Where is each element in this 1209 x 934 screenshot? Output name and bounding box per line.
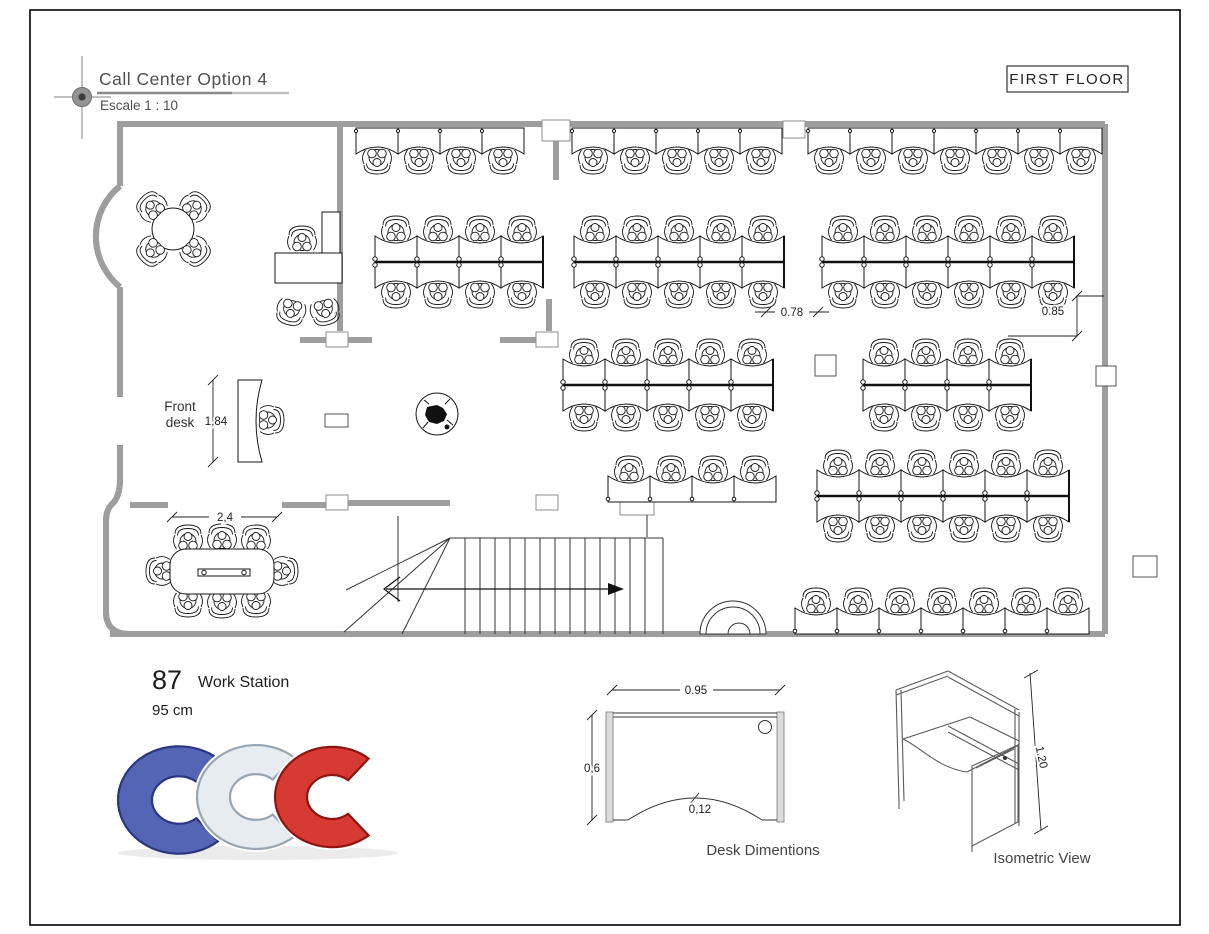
office-chair-icon [992,517,1021,542]
office-chair-icon [829,216,858,241]
workstation-wall-row [806,128,1102,174]
office-chair-icon [508,216,537,241]
office-chair-icon [466,216,495,241]
office-chair-icon [950,450,979,475]
dim-cubicle-height: 1.20 [1033,745,1049,769]
office-chair-icon [208,593,237,618]
furniture-layer [132,128,1102,634]
office-chair-icon [749,283,778,308]
office-chair-icon [174,592,203,617]
workstation-cluster [861,339,1031,431]
office-chair-icon [997,216,1026,241]
workstation-cluster [820,216,1074,308]
office-chair-icon [941,149,970,174]
office-chair-icon [741,456,770,481]
office-chair-icon [970,588,999,613]
dim-conference: 2,4 [217,512,234,524]
office-chair-icon [424,283,453,308]
office-chair-icon [665,283,694,308]
office-chair-icon [273,297,307,328]
office-chair-icon [508,283,537,308]
office-chair-icon [288,226,317,251]
office-chair-icon [623,216,652,241]
office-chair-icon [621,149,650,174]
plant-icon [416,393,458,435]
office-chair-icon [570,406,599,431]
isometric-caption: Isometric View [993,850,1090,867]
office-chair-icon [912,406,941,431]
floor-label: FIRST FLOOR [1007,66,1128,92]
office-chair-icon [1034,517,1063,542]
office-chair-icon [665,216,694,241]
office-chair-icon [581,283,610,308]
office-chair-icon [424,216,453,241]
office-chair-icon [615,456,644,481]
office-chair-icon [663,149,692,174]
office-chair-icon [866,450,895,475]
office-chair-icon [1025,149,1054,174]
desk-diagram-caption: Desk Dimentions [706,842,819,859]
dim-wall-offset: 0.85 [1042,306,1064,318]
office-chair-icon [954,339,983,364]
office-chair-icon [871,216,900,241]
office-chair-icon [912,339,941,364]
office-chair-icon [870,339,899,364]
office-chair-icon [382,216,411,241]
office-chair-icon [955,216,984,241]
dim-desk-depth: 0,6 [584,763,600,775]
office-chair-icon [954,406,983,431]
workstation-cluster [815,450,1069,542]
office-chair-icon [612,339,641,364]
workstation-cluster [373,216,543,308]
office-chair-icon [696,406,725,431]
office-chair-icon [405,149,434,174]
office-chair-icon [950,517,979,542]
office-chair-icon [570,339,599,364]
office-chair-icon [749,216,778,241]
office-chair-icon [824,450,853,475]
scale-label: Escale 1 : 10 [100,98,178,113]
office-chair-icon [992,450,1021,475]
office-chair-icon [382,283,411,308]
station-size-label: 95 cm [152,702,193,719]
office-chair-icon [146,557,171,586]
office-chair-icon [707,216,736,241]
workstation-cluster [561,339,773,431]
office-chair-icon [928,588,957,613]
office-chair-icon [466,283,495,308]
workstation-row [606,456,776,502]
office-chair-icon [1054,588,1083,613]
office-chair-icon [699,456,728,481]
office-chair-icon [908,517,937,542]
office-chair-icon [654,406,683,431]
office-chair-icon [612,406,641,431]
page-title: Call Center Option 4 [99,69,268,89]
office-chair-icon [747,149,776,174]
office-chair-icon [705,149,734,174]
office-chair-icon [802,588,831,613]
office-chair-icon [1034,450,1063,475]
svg-text:FIRST FLOOR: FIRST FLOOR [1009,71,1124,88]
office-chair-icon [815,149,844,174]
conference-room [146,524,298,618]
office-chair-icon [844,588,873,613]
office-chair-icon [581,216,610,241]
workstation-wall-row [570,128,782,174]
manager-office [273,212,342,328]
front-desk-label: Front [164,399,196,414]
workstation-cluster [572,216,784,308]
office-chair-icon [623,283,652,308]
station-count-label: Work Station [198,674,289,691]
stair-arrow-icon [608,583,624,595]
office-chair-icon [208,524,237,549]
office-chair-icon [242,592,271,617]
dim-aisle: 0.78 [781,307,803,319]
office-chair-icon [657,456,686,481]
grommet-icon [759,721,772,734]
office-chair-icon [579,149,608,174]
office-chair-icon [1039,216,1068,241]
front-desk [238,380,284,462]
floor-plan-sheet: Call Center Option 4 Escale 1 : 10 FIRST… [0,0,1209,934]
isometric-cubicle [896,671,1019,852]
stairs [344,515,663,634]
office-chair-icon [1067,149,1096,174]
workstation-row [793,588,1089,634]
office-chair-icon [870,406,899,431]
office-chair-icon [696,339,725,364]
office-chair-icon [174,525,203,550]
office-chair-icon [363,149,392,174]
office-chair-icon [908,450,937,475]
office-chair-icon [899,149,928,174]
svg-text:desk: desk [166,415,195,430]
office-chair-icon [738,406,767,431]
office-chair-icon [913,216,942,241]
office-chair-icon [866,517,895,542]
company-logo [118,745,398,860]
office-chair-icon [242,525,271,550]
office-chair-icon [1012,588,1041,613]
office-chair-icon [996,339,1025,364]
office-chair-icon [857,149,886,174]
office-chair-icon [996,406,1025,431]
office-chair-icon [983,149,1012,174]
reception-area [132,187,215,271]
office-chair-icon [824,517,853,542]
office-chair-icon [1039,283,1068,308]
dim-desk-width: 0.95 [685,685,707,697]
office-chair-icon [997,283,1026,308]
office-chair-icon [259,406,284,435]
office-chair-icon [489,149,518,174]
dim-front-desk: 1,84 [205,416,228,428]
office-chair-icon [447,149,476,174]
office-chair-icon [707,283,736,308]
office-chair-icon [886,588,915,613]
office-chair-icon [829,283,858,308]
office-chair-icon [273,557,298,586]
office-chair-icon [738,339,767,364]
wall-niche [700,601,766,634]
office-chair-icon [871,283,900,308]
station-count: 87 [152,665,182,695]
office-chair-icon [654,339,683,364]
office-chair-icon [913,283,942,308]
wall-junction-boxes [326,120,805,515]
workstation-wall-row [354,128,524,174]
office-chair-icon [955,283,984,308]
dim-desk-notch: 0,12 [689,804,711,816]
